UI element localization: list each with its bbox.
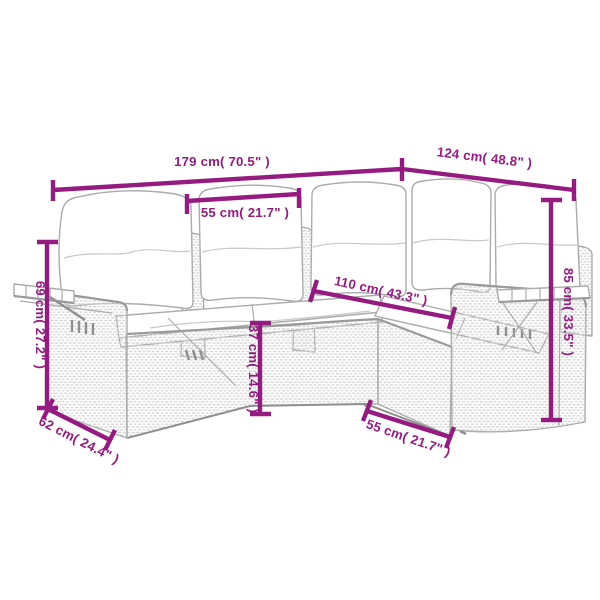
dim-seat-height-label: 37 cm( 14.6" ) [246,325,261,413]
sofa-line-drawing [14,179,592,438]
back-cushion [59,191,193,309]
dim-total-width-label: 179 cm( 70.5" ) [174,154,270,169]
back-cushion [412,179,491,292]
dim-armrest-height-label: 69 cm( 27.2" ) [33,281,48,369]
dim-seat-width-label: 55 cm( 21.7" ) [201,205,289,220]
dimension-diagram: 179 cm( 70.5" ) 124 cm( 48.8" ) 55 cm( 2… [0,0,600,600]
diagram-canvas: 179 cm( 70.5" ) 124 cm( 48.8" ) 55 cm( 2… [0,0,600,600]
dim-total-depth-right-label: 124 cm( 48.8" ) [436,144,533,171]
left-armrest [14,284,127,438]
back-cushion [199,185,303,301]
dim-back-height-label: 85 cm( 33.5" ) [561,268,576,356]
